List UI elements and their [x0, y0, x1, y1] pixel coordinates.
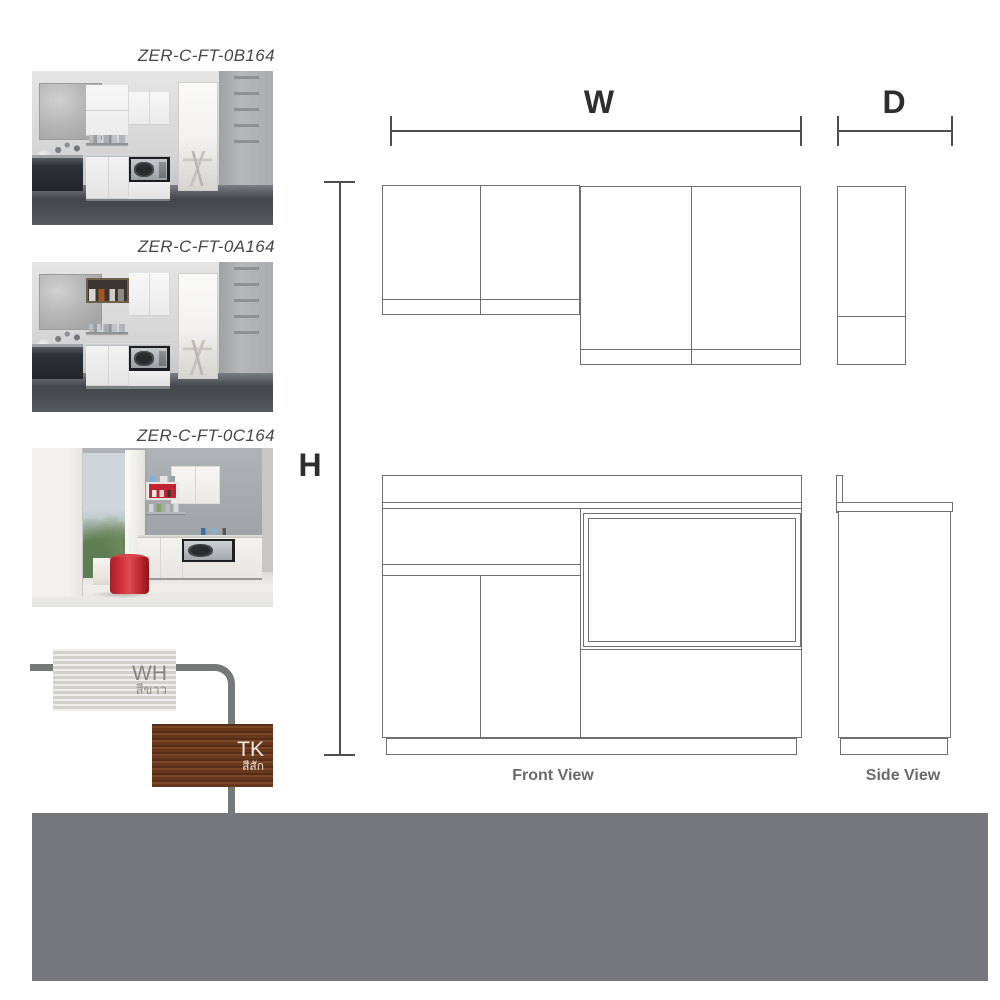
- photo-shelf: [86, 143, 128, 145]
- photo-plinth: [86, 199, 170, 201]
- photo-right-wall: [262, 448, 273, 572]
- depth-tick-left: [837, 116, 839, 146]
- wall-cabinet-side-outline: [837, 186, 906, 365]
- wall-cabinet-side-divider: [838, 316, 905, 317]
- photo-chair: [183, 151, 212, 186]
- microwave: [131, 159, 167, 180]
- photo-plinth: [86, 386, 170, 388]
- swatch-tk: TK สีสัก: [152, 724, 273, 787]
- photo-red-pouf: [110, 557, 149, 594]
- microwave: [131, 348, 167, 368]
- photo-plinth: [138, 578, 262, 580]
- swatch-wh-code: WH: [132, 663, 167, 684]
- photo-box-top-items: [150, 476, 175, 482]
- base-door-divider: [480, 576, 481, 738]
- base-drawer-bottom-line: [383, 564, 580, 565]
- swatch-wh: WH สีขาว: [53, 649, 176, 711]
- swatch-wh-name: สีขาว: [136, 684, 167, 697]
- spec-sheet-page: ZER-C-FT-0B164 ZER-C-FT-0A164: [0, 0, 1000, 1000]
- photo-microwave-niche: [129, 157, 170, 182]
- photo-shelf: [86, 332, 128, 334]
- photo-dishes: [89, 324, 125, 332]
- microwave-panel: [159, 351, 165, 366]
- product-code-2: ZER-C-FT-0A164: [32, 237, 275, 257]
- product-photo-2: [32, 262, 273, 412]
- front-view-label: Front View: [480, 767, 626, 785]
- width-tick-left: [390, 116, 392, 146]
- product-photo-3: [32, 448, 273, 607]
- photo-upper-cabinet-right: [129, 273, 170, 316]
- height-tick-bottom: [324, 754, 355, 756]
- photo-base-drawer: [129, 182, 170, 198]
- base-section-divider: [580, 509, 581, 738]
- photo-dishes: [89, 135, 125, 143]
- depth-tick-right: [951, 116, 953, 146]
- wall-cabinet-left-outline: [382, 185, 580, 315]
- wall-cabinet-left-bottom-rail: [383, 299, 579, 300]
- photo-shelf-items: [149, 504, 182, 511]
- photo-red-box-interior: [149, 484, 176, 498]
- width-dimension-line: [390, 130, 802, 132]
- photo-plant: [51, 325, 87, 345]
- wall-cabinet-left-door-divider: [480, 186, 481, 314]
- photo-upper-cabinet-left: [86, 85, 128, 136]
- photo-dark-cabinet: [32, 158, 83, 191]
- photo-plant: [51, 136, 87, 156]
- base-plinth: [386, 738, 797, 755]
- photo-box-items: [152, 490, 174, 497]
- depth-dimension-label: D: [859, 84, 929, 121]
- microwave-compartment-inner: [588, 518, 796, 642]
- side-body: [838, 511, 951, 738]
- microwave-window: [134, 162, 154, 177]
- base-countertop-underline: [383, 508, 801, 509]
- swatch-tk-name: สีสัก: [242, 760, 264, 772]
- photo-shelf: [146, 512, 186, 514]
- microwave-window: [134, 351, 154, 366]
- wall-cabinet-right-door-divider: [691, 187, 692, 364]
- photo-wall-shelves: [234, 267, 258, 339]
- height-dimension-line: [339, 181, 341, 756]
- photo-chair: [183, 340, 212, 375]
- swatch-tk-code: TK: [237, 739, 264, 760]
- photo-upper-cabinet-right: [129, 92, 170, 125]
- product-photo-1: [32, 71, 273, 225]
- photo-dark-cabinet: [32, 347, 83, 379]
- microwave-window: [188, 544, 213, 558]
- microwave-panel: [159, 162, 165, 178]
- side-plinth: [840, 738, 948, 755]
- height-tick-top: [324, 181, 355, 183]
- product-code-1: ZER-C-FT-0B164: [32, 46, 275, 66]
- side-view-label: Side View: [830, 767, 976, 785]
- footer-banner: 1.64m. compact kitchen H2055 x W1640 x D…: [32, 813, 988, 981]
- width-tick-right: [800, 116, 802, 146]
- photo-base-doors: [86, 157, 129, 199]
- microwave: [184, 541, 232, 560]
- photo-box-items: [89, 289, 125, 300]
- width-dimension-label: W: [564, 84, 634, 121]
- base-right-drawer-line: [581, 649, 801, 650]
- photo-base-cabinets: [138, 538, 262, 578]
- wall-cabinet-right-bottom-rail: [581, 349, 800, 350]
- depth-dimension-line: [837, 130, 953, 132]
- photo-base-doors: [86, 346, 129, 387]
- product-code-3: ZER-C-FT-0C164: [32, 426, 275, 446]
- photo-wall-shelves: [234, 76, 258, 150]
- base-countertop-line: [383, 502, 801, 503]
- base-door-top-line: [383, 575, 580, 576]
- height-dimension-label: H: [288, 447, 332, 484]
- photo-sliding-door: [32, 448, 83, 596]
- photo-microwave-niche: [129, 346, 170, 371]
- photo-open-box-shelf: [86, 278, 128, 304]
- photo-red-box-shelf: [146, 482, 179, 500]
- photo-microwave-niche: [182, 539, 235, 562]
- photo-base-drawer: [129, 371, 170, 387]
